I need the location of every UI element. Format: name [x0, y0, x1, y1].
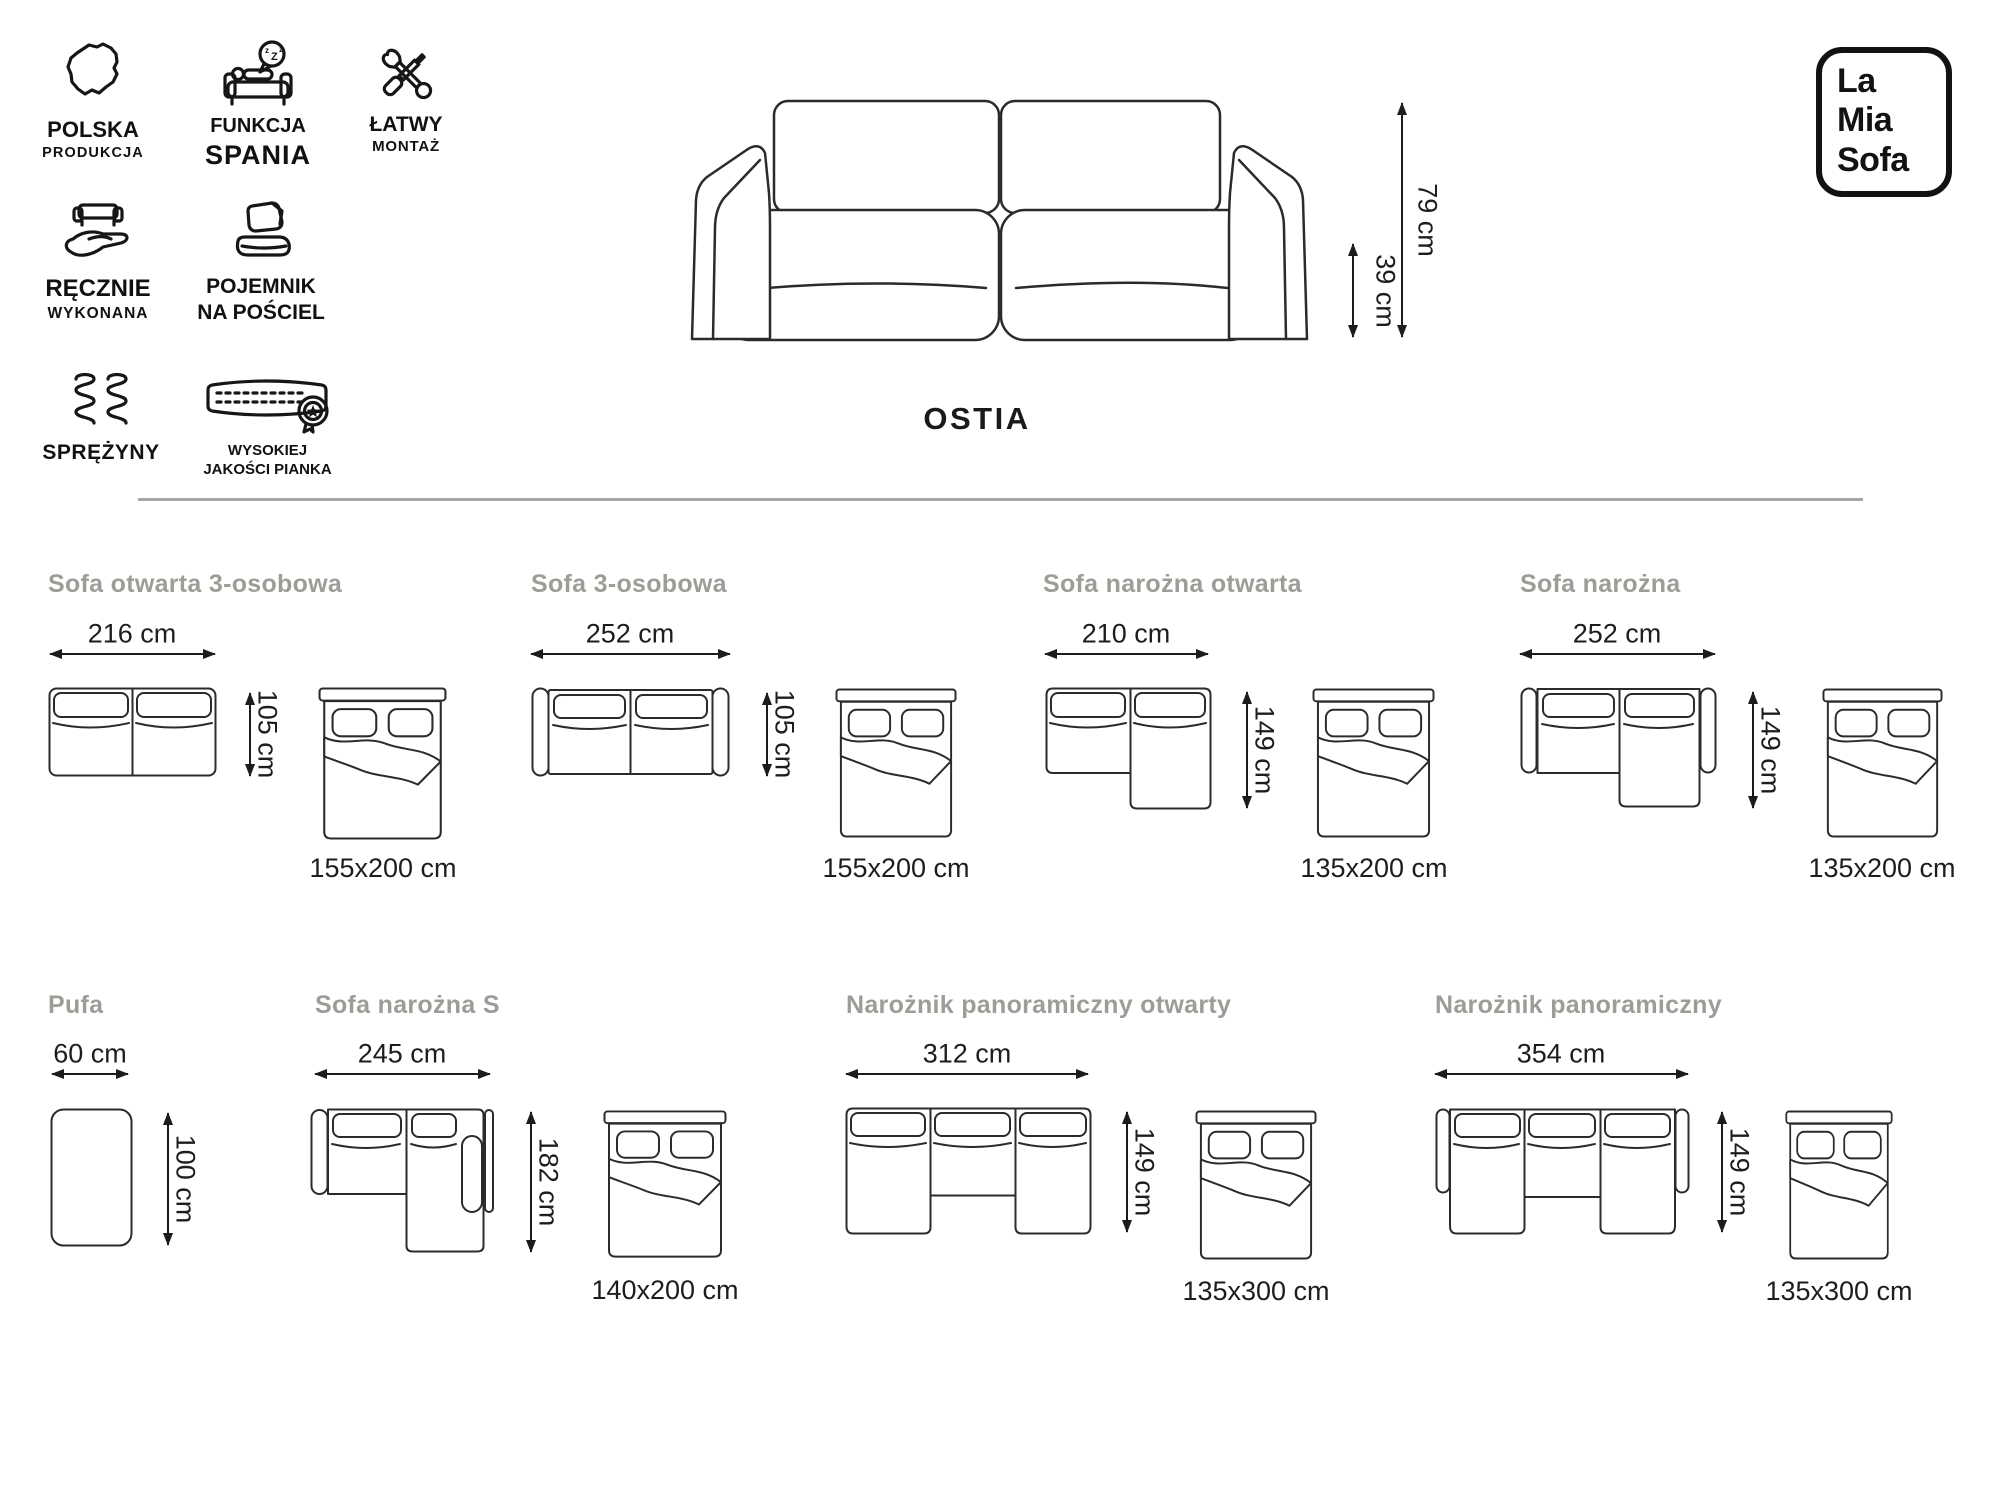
feature-label: POLSKA: [47, 116, 139, 144]
zzz-text: z: [279, 45, 283, 54]
feature-label: WYSOKIEJ: [228, 442, 307, 461]
variant-title: Narożnik panoramiczny otwarty: [846, 991, 1231, 1020]
feature-funkcja-spania: z Z z FUNKCJA SPANIA: [190, 40, 326, 173]
seat-height-arrow: [1352, 244, 1354, 337]
bedding-storage-icon: [224, 198, 298, 268]
bed-size-label: 155x200 cm: [822, 853, 969, 884]
width-arrow: [1435, 1073, 1688, 1075]
width-label: 245 cm: [358, 1039, 447, 1070]
feature-label: POJEMNIK: [206, 274, 316, 300]
variant-title: Sofa narożna S: [315, 991, 500, 1020]
width-arrow: [315, 1073, 490, 1075]
width-label: 252 cm: [1573, 619, 1662, 650]
sofa-top-view: [1520, 687, 1717, 808]
section-divider: [138, 498, 1863, 501]
sofa-front-view: [686, 98, 1314, 346]
feature-pojemnik-na-posciel: POJEMNIK NA POŚCIEL: [186, 198, 336, 327]
feature-polska-produkcja: POLSKA PRODUKCJA: [28, 40, 158, 162]
variant-title: Sofa otwarta 3-osobowa: [48, 570, 342, 599]
variant-title: Sofa narożna: [1520, 570, 1681, 599]
sofa-top-view: [1435, 1108, 1690, 1235]
spec-sheet: POLSKA PRODUKCJA z Z z FUNKCJA SPANIA: [0, 0, 2000, 1500]
bed-size-label: 155x200 cm: [309, 853, 456, 884]
bed-top-view: [603, 1110, 727, 1260]
depth-label: 149 cm: [1249, 706, 1280, 795]
width-label: 354 cm: [1517, 1039, 1606, 1070]
feature-latwy-montaz: ŁATWY MONTAŻ: [346, 42, 466, 157]
feature-recznie-wykonana: RĘCZNIE WYKONANA: [30, 198, 166, 323]
width-arrow: [1520, 653, 1715, 655]
depth-label: 100 cm: [170, 1135, 201, 1224]
bed-top-view: [1785, 1110, 1893, 1262]
feature-sublabel: PRODUKCJA: [42, 144, 144, 162]
width-label: 60 cm: [53, 1039, 127, 1070]
feature-label: FUNKCJA: [210, 114, 306, 139]
zzz-text: Z: [271, 51, 278, 63]
brand-logo: La Mia Sofa: [1816, 47, 1952, 197]
product-name: OSTIA: [857, 401, 1097, 437]
feature-sublabel: MONTAŻ: [372, 138, 440, 157]
bed-size-label: 135x200 cm: [1808, 853, 1955, 884]
bed-top-view: [1195, 1110, 1317, 1262]
depth-label: 182 cm: [533, 1138, 564, 1227]
feature-sublabel: JAKOŚCI PIANKA: [203, 461, 331, 480]
zzz-text: z: [265, 46, 269, 55]
bed-top-view: [1312, 688, 1435, 840]
width-arrow: [1045, 653, 1208, 655]
width-label: 252 cm: [586, 619, 675, 650]
feature-label: SPRĘŻYNY: [42, 440, 159, 466]
depth-label: 149 cm: [1724, 1128, 1755, 1217]
width-label: 210 cm: [1082, 619, 1171, 650]
feature-sublabel: WYKONANA: [48, 304, 149, 323]
feature-label: RĘCZNIE: [45, 274, 150, 304]
seat-height-label: 39 cm: [1370, 254, 1401, 328]
sofa-top-view: [48, 687, 217, 777]
tools-icon: [375, 42, 437, 108]
variant-title: Sofa narożna otwarta: [1043, 570, 1302, 599]
feature-sublabel: SPANIA: [205, 139, 311, 173]
variant-title: Narożnik panoramiczny: [1435, 991, 1722, 1020]
overall-height-label: 79 cm: [1412, 183, 1443, 257]
depth-label: 149 cm: [1129, 1128, 1160, 1217]
bed-top-view: [1822, 688, 1943, 840]
brand-logo-line: Sofa: [1837, 141, 1946, 180]
bed-top-view: [318, 687, 447, 842]
bed-size-label: 135x300 cm: [1182, 1276, 1329, 1307]
sleep-function-icon: z Z z: [220, 40, 296, 110]
pouf-top-view: [50, 1108, 133, 1247]
feature-sprezyny: SPRĘŻYNY: [36, 368, 166, 466]
depth-label: 149 cm: [1755, 706, 1786, 795]
sofa-top-view: [531, 687, 730, 777]
poland-map-icon: [59, 40, 127, 110]
sofa-top-view: [310, 1108, 494, 1253]
springs-icon: [68, 368, 134, 432]
bed-size-label: 140x200 cm: [591, 1275, 738, 1306]
feature-sublabel: NA POŚCIEL: [197, 300, 325, 326]
width-arrow: [531, 653, 730, 655]
feature-label: ŁATWY: [369, 112, 442, 138]
width-label: 216 cm: [88, 619, 177, 650]
variant-title: Sofa 3-osobowa: [531, 570, 727, 599]
feature-pianka: WYSOKIEJ JAKOŚCI PIANKA: [180, 374, 355, 480]
width-arrow: [50, 653, 215, 655]
bed-top-view: [835, 688, 957, 840]
width-arrow: [846, 1073, 1088, 1075]
overall-height-arrow: [1401, 103, 1403, 337]
handmade-icon: [59, 198, 137, 268]
variant-title: Pufa: [48, 991, 103, 1020]
width-label: 312 cm: [923, 1039, 1012, 1070]
brand-logo-line: Mia: [1837, 101, 1946, 140]
bed-size-label: 135x200 cm: [1300, 853, 1447, 884]
sofa-top-view: [845, 1107, 1092, 1235]
foam-quality-icon: [202, 374, 334, 434]
sofa-top-view: [1045, 687, 1212, 810]
depth-label: 105 cm: [252, 690, 283, 779]
bed-size-label: 135x300 cm: [1765, 1276, 1912, 1307]
brand-logo-line: La: [1837, 62, 1946, 101]
width-arrow: [52, 1073, 128, 1075]
depth-label: 105 cm: [769, 690, 800, 779]
